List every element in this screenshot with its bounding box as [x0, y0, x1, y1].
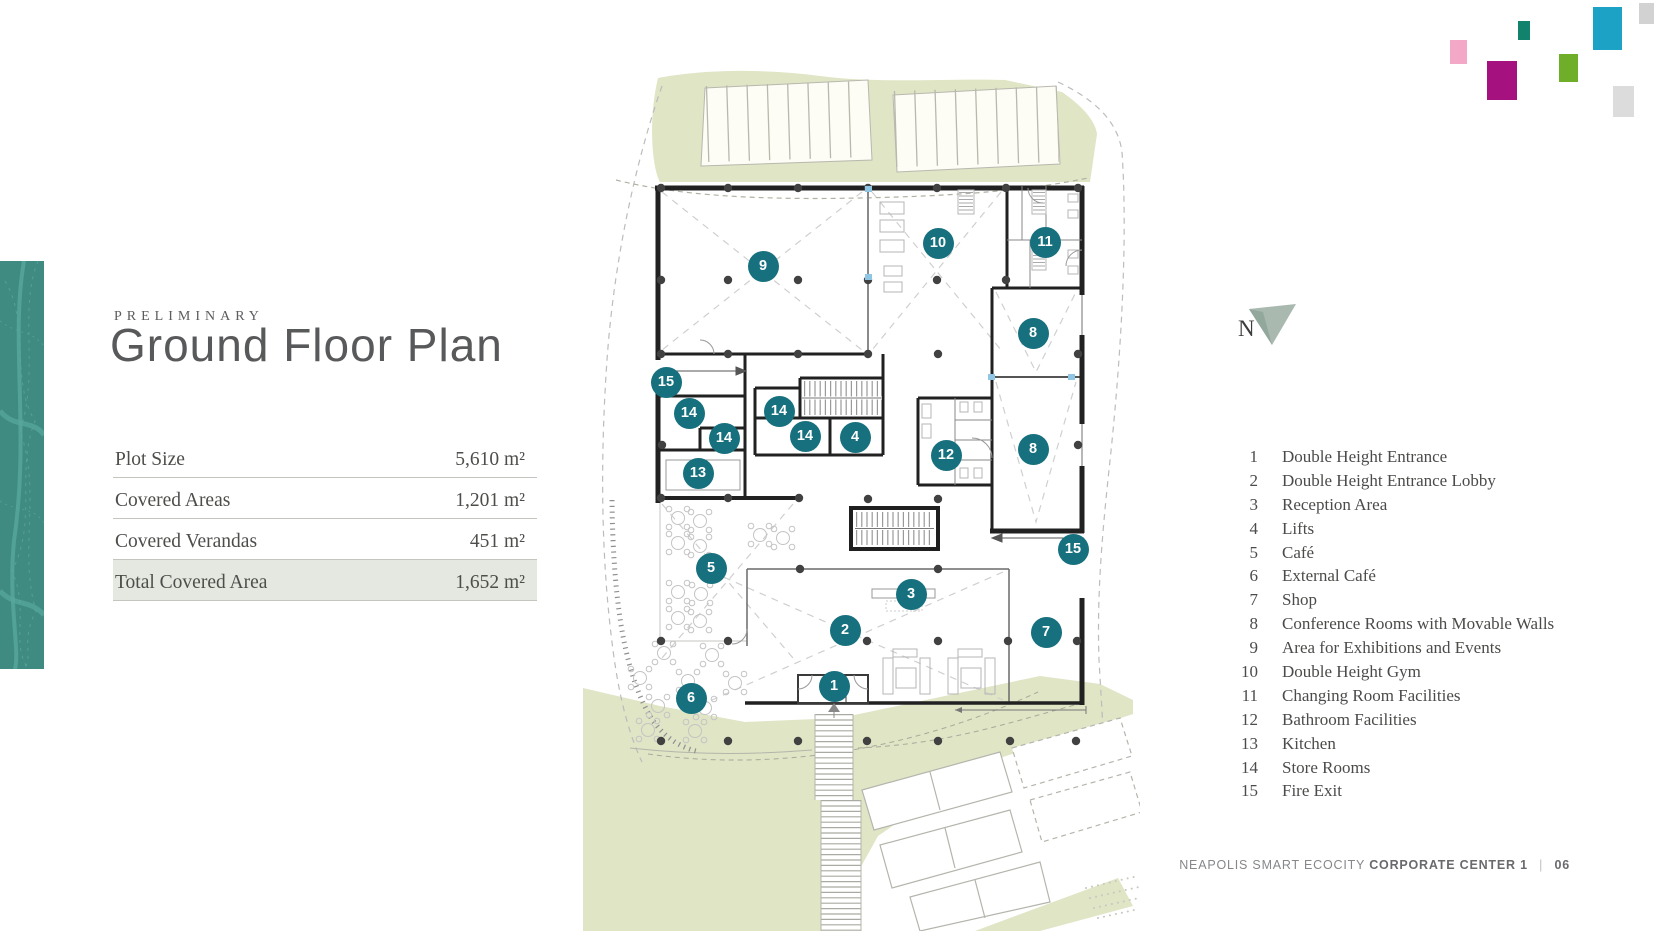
legend-label: Double Height Entrance: [1258, 445, 1447, 469]
legend-item: 5Café: [1200, 541, 1554, 565]
table-row: Covered Areas 1,201 m²: [113, 478, 537, 519]
legend-item: 14Store Rooms: [1200, 756, 1554, 780]
legend-num: 7: [1200, 588, 1258, 612]
stat-label: Covered Verandas: [115, 531, 257, 553]
page-title: Ground Floor Plan: [110, 318, 503, 372]
plan-marker-5: 5: [696, 553, 727, 584]
stat-label: Total Covered Area: [115, 572, 267, 594]
legend-item: 11Changing Room Facilities: [1200, 684, 1554, 708]
legend-item: 10Double Height Gym: [1200, 660, 1554, 684]
legend-num: 5: [1200, 541, 1258, 565]
footer-document: CORPORATE CENTER 1: [1369, 858, 1528, 872]
legend-item: 8Conference Rooms with Movable Walls: [1200, 612, 1554, 636]
legend-num: 9: [1200, 636, 1258, 660]
table-row: Covered Verandas 451 m²: [113, 519, 537, 560]
plan-marker-3: 3: [896, 579, 927, 610]
legend-item: 15Fire Exit: [1200, 779, 1554, 803]
plan-marker-14b: 14: [764, 396, 795, 427]
plan-marker-12: 12: [931, 440, 962, 471]
legend-item: 1Double Height Entrance: [1200, 445, 1554, 469]
legend-item: 13Kitchen: [1200, 732, 1554, 756]
legend-num: 12: [1200, 708, 1258, 732]
legend-label: Café: [1258, 541, 1314, 565]
logo-square-teal: [1593, 7, 1622, 50]
plan-marker-15a: 15: [651, 367, 682, 398]
plan-marker-8b: 8: [1018, 434, 1049, 465]
north-label: N: [1238, 316, 1255, 342]
plan-marker-11: 11: [1030, 227, 1061, 258]
legend-item: 9Area for Exhibitions and Events: [1200, 636, 1554, 660]
legend-item: 6External Café: [1200, 564, 1554, 588]
legend-item: 7Shop: [1200, 588, 1554, 612]
legend-num: 4: [1200, 517, 1258, 541]
footer-project: NEAPOLIS SMART ECOCITY: [1179, 858, 1365, 872]
legend-item: 2Double Height Entrance Lobby: [1200, 469, 1554, 493]
legend-label: External Café: [1258, 564, 1376, 588]
plan-marker-7: 7: [1031, 617, 1062, 648]
plan-marker-9: 9: [748, 251, 779, 282]
plan-marker-14a: 14: [674, 398, 705, 429]
plan-marker-1: 1: [819, 671, 850, 702]
logo-square-darkgreen: [1518, 21, 1530, 40]
stat-value: 1,201 m²: [455, 490, 525, 512]
legend-num: 1: [1200, 445, 1258, 469]
plan-marker-6: 6: [676, 683, 707, 714]
logo-square-gray: [1613, 86, 1634, 117]
legend-label: Double Height Gym: [1258, 660, 1421, 684]
floor-plan-drawing: [575, 60, 1140, 931]
logo-square-pink: [1450, 40, 1467, 64]
table-row: Plot Size 5,610 m²: [113, 437, 537, 478]
legend-num: 6: [1200, 564, 1258, 588]
legend-label: Shop: [1258, 588, 1317, 612]
plan-marker-10: 10: [923, 228, 954, 259]
legend-label: Area for Exhibitions and Events: [1258, 636, 1501, 660]
footer-separator: |: [1539, 858, 1543, 872]
legend-label: Bathroom Facilities: [1258, 708, 1417, 732]
legend-num: 14: [1200, 756, 1258, 780]
plan-marker-15b: 15: [1058, 534, 1089, 565]
legend-item: 4Lifts: [1200, 517, 1554, 541]
legend-num: 8: [1200, 612, 1258, 636]
stat-value: 451 m²: [470, 531, 525, 553]
legend-label: Kitchen: [1258, 732, 1336, 756]
area-stats-table: Plot Size 5,610 m² Covered Areas 1,201 m…: [113, 437, 537, 601]
blue-accents: [865, 186, 1075, 380]
plan-marker-4: 4: [840, 422, 871, 453]
footer-page-number: 06: [1554, 858, 1570, 872]
legend-num: 13: [1200, 732, 1258, 756]
plan-marker-8a: 8: [1018, 318, 1049, 349]
legend-item: 3Reception Area: [1200, 493, 1554, 517]
legend-num: 15: [1200, 779, 1258, 803]
legend-label: Reception Area: [1258, 493, 1387, 517]
logo-square-magenta: [1487, 61, 1517, 100]
legend-num: 10: [1200, 660, 1258, 684]
legend-label: Conference Rooms with Movable Walls: [1258, 612, 1554, 636]
plan-marker-2: 2: [830, 615, 861, 646]
logo-square-lime: [1559, 54, 1578, 82]
plan-marker-14c: 14: [709, 423, 740, 454]
stat-label: Covered Areas: [115, 490, 230, 512]
logo-square-corner: [1639, 3, 1654, 24]
plan-marker-13: 13: [683, 458, 714, 489]
table-row-total: Total Covered Area 1,652 m²: [113, 560, 537, 601]
walls-interior: [658, 186, 1082, 531]
legend-num: 11: [1200, 684, 1258, 708]
slide: { "kicker": "PRELIMINARY", "title": "Gro…: [0, 0, 1654, 931]
room-legend: 1Double Height Entrance 2Double Height E…: [1200, 445, 1554, 803]
footer: NEAPOLIS SMART ECOCITY CORPORATE CENTER …: [1179, 858, 1570, 872]
stat-value: 1,652 m²: [455, 572, 525, 594]
legend-label: Double Height Entrance Lobby: [1258, 469, 1496, 493]
legend-label: Store Rooms: [1258, 756, 1370, 780]
stat-value: 5,610 m²: [455, 449, 525, 471]
legend-num: 3: [1200, 493, 1258, 517]
plan-marker-14d: 14: [790, 421, 821, 452]
leaf-texture-strip: [0, 261, 44, 669]
stat-label: Plot Size: [115, 449, 185, 471]
legend-label: Changing Room Facilities: [1258, 684, 1461, 708]
legend-label: Lifts: [1258, 517, 1314, 541]
legend-num: 2: [1200, 469, 1258, 493]
legend-label: Fire Exit: [1258, 779, 1342, 803]
legend-item: 12Bathroom Facilities: [1200, 708, 1554, 732]
